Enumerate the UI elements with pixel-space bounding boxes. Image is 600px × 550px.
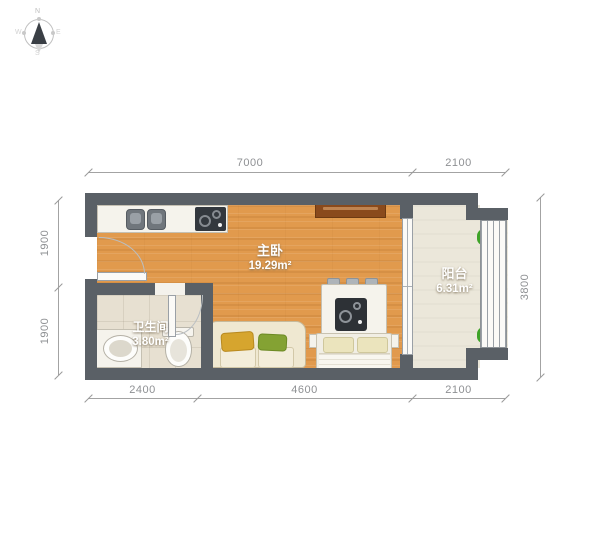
compass-north-label: N bbox=[35, 8, 40, 15]
floor-plan-canvas: N S W E bbox=[0, 0, 600, 550]
bathroom-name: 卫生间 bbox=[103, 320, 198, 335]
pillow bbox=[357, 337, 388, 353]
compass-knob-west bbox=[22, 31, 26, 35]
bedroom-label: 主卧 19.29m² bbox=[215, 243, 325, 274]
dimension-line-right bbox=[540, 197, 541, 377]
wall-segment bbox=[466, 353, 478, 380]
compass-south-label: S bbox=[35, 50, 40, 57]
dimension-left-1: 1900 bbox=[39, 226, 55, 260]
wall-segment bbox=[400, 354, 413, 368]
sofa-pillow-yellow bbox=[220, 331, 254, 352]
table-tray-icon bbox=[335, 298, 367, 331]
bathroom-label: 卫生间 3.80m² bbox=[103, 320, 198, 349]
wall-segment bbox=[85, 193, 97, 237]
wall-segment bbox=[466, 208, 508, 220]
cooktop-icon bbox=[195, 207, 226, 231]
bedroom-area: 19.29m² bbox=[215, 259, 325, 273]
bathroom-door-threshold bbox=[155, 283, 185, 295]
compass-needle-icon bbox=[31, 22, 47, 44]
nightstand bbox=[391, 334, 399, 348]
dimension-bottom-1: 2400 bbox=[88, 384, 197, 396]
dimension-line-bottom bbox=[88, 398, 505, 399]
compass-east-label: E bbox=[56, 29, 61, 36]
pillow bbox=[323, 337, 354, 353]
wall-segment bbox=[85, 368, 478, 380]
dimension-line-top bbox=[88, 172, 505, 173]
compass-knob-north bbox=[37, 17, 41, 21]
tv-icon bbox=[323, 207, 378, 210]
compass-knob-east bbox=[51, 31, 55, 35]
sofa bbox=[207, 321, 306, 371]
compass-west-label: W bbox=[15, 29, 22, 36]
sink-bowl-right-icon bbox=[147, 209, 166, 230]
dimension-bottom-3: 2100 bbox=[412, 384, 505, 396]
dimension-right-1: 3800 bbox=[519, 270, 535, 304]
wall-segment bbox=[400, 205, 413, 219]
sink-bowl-left-icon bbox=[126, 209, 145, 230]
wall-segment bbox=[85, 283, 155, 295]
balcony-name: 阳台 bbox=[407, 266, 502, 282]
balcony-area: 6.31m² bbox=[407, 282, 502, 296]
balcony-label: 阳台 6.31m² bbox=[407, 266, 502, 297]
dimension-bottom-2: 4600 bbox=[197, 384, 412, 396]
compass-icon: N S W E bbox=[18, 8, 60, 58]
sofa-pillow-green bbox=[258, 333, 288, 351]
dimension-top-2: 2100 bbox=[412, 157, 505, 169]
dimension-left-2: 1900 bbox=[39, 314, 55, 348]
bathroom-area: 3.80m² bbox=[103, 335, 198, 349]
bedroom-name: 主卧 bbox=[215, 243, 325, 259]
dimension-top-1: 7000 bbox=[88, 157, 412, 169]
wall-segment bbox=[85, 193, 478, 205]
